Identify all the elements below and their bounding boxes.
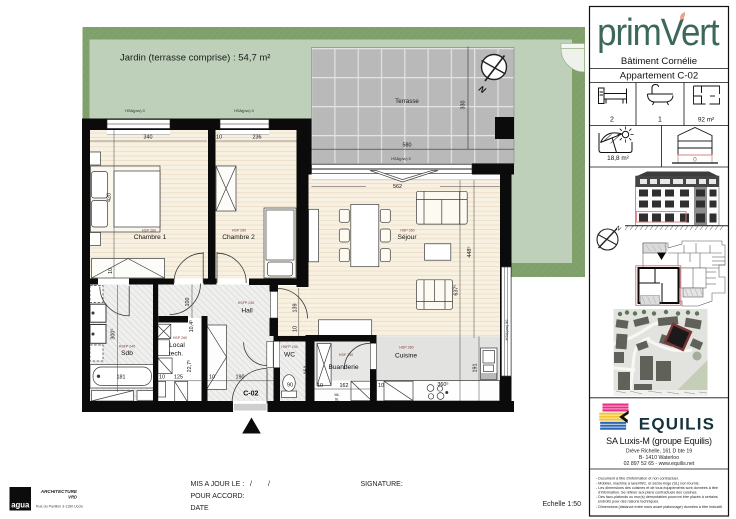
svg-text:Terrasse: Terrasse <box>395 98 419 105</box>
svg-text:HSP 260: HSP 260 <box>173 336 187 340</box>
svg-text:100: 100 <box>185 298 191 307</box>
svg-text:agua: agua <box>11 501 30 510</box>
svg-text:- Dimensions (distance entre m: - Dimensions (distance entre murs avant … <box>596 505 723 509</box>
svg-text:SIGNATURE:: SIGNATURE: <box>361 481 403 488</box>
svg-text:10: 10 <box>159 375 165 381</box>
svg-text:Echelle 1:50: Echelle 1:50 <box>542 501 581 508</box>
svg-text:Séjour: Séjour <box>397 234 417 241</box>
svg-text:HSA(pvc) 0: HSA(pvc) 0 <box>125 109 144 113</box>
svg-text:162: 162 <box>340 383 349 389</box>
svg-text:Jardin (terrasse comprise) : 5: Jardin (terrasse comprise) : 54,7 m² <box>120 53 270 64</box>
svg-text:Chambre 1: Chambre 1 <box>134 234 167 241</box>
svg-text:ARCHITECTURE: ARCHITECTURE <box>40 489 78 494</box>
svg-text:637⁵: 637⁵ <box>454 284 460 295</box>
svg-text:2: 2 <box>610 117 614 124</box>
svg-text:562: 562 <box>393 184 402 190</box>
svg-text:330: 330 <box>461 101 467 110</box>
svg-text:Sdb: Sdb <box>121 350 133 357</box>
svg-text:- Document à titre d'informati: - Document à titre d'information et non … <box>596 477 679 481</box>
svg-text:Hall: Hall <box>241 308 253 315</box>
svg-text:10: 10 <box>317 383 323 389</box>
svg-text:MIS A JOUR LE :: MIS A JOUR LE : <box>191 481 245 488</box>
svg-text:236: 236 <box>253 135 262 141</box>
svg-text:360⁵: 360⁵ <box>437 382 448 388</box>
svg-text:125: 125 <box>174 375 183 381</box>
svg-text:EQUILIS: EQUILIS <box>639 415 715 434</box>
svg-text:SL: SL <box>335 398 339 402</box>
svg-text:22,7⁵: 22,7⁵ <box>187 360 193 373</box>
svg-text:Cuisine: Cuisine <box>395 353 417 360</box>
svg-text:300⁵: 300⁵ <box>111 328 117 339</box>
svg-text:161: 161 <box>304 366 310 375</box>
svg-text:WC: WC <box>284 352 295 359</box>
svg-text:02 897 52 65 - www.equilis.net: 02 897 52 65 - www.equilis.net <box>624 461 695 467</box>
svg-text:DATE: DATE <box>191 505 209 512</box>
svg-text:HSP 260: HSP 260 <box>142 229 156 233</box>
svg-text:10: 10 <box>216 135 222 141</box>
svg-text:ML: ML <box>335 393 340 397</box>
svg-text:18,8 m²: 18,8 m² <box>607 155 629 162</box>
svg-text:340: 340 <box>144 135 153 141</box>
svg-text:endroits pour des raisons tech: endroits pour des raisons techniques. <box>598 500 659 504</box>
svg-text:Chambre 2: Chambre 2 <box>222 234 255 241</box>
svg-text:HSA(vm) 90: HSA(vm) 90 <box>505 320 509 341</box>
svg-text:139: 139 <box>292 304 298 313</box>
svg-text:HSA(pvc) 0: HSA(pvc) 0 <box>391 157 410 161</box>
svg-text:1: 1 <box>658 117 662 124</box>
svg-text:d'information. Se référer aux: d'information. Se référer aux plans cont… <box>598 490 698 494</box>
svg-text:HSP 260: HSP 260 <box>232 229 246 233</box>
svg-text:Drève Richelle, 161 D bte 19: Drève Richelle, 161 D bte 19 <box>626 449 692 455</box>
svg-text:92 m²: 92 m² <box>698 117 714 124</box>
svg-text:VRD: VRD <box>68 495 77 500</box>
svg-text:HSP 260: HSP 260 <box>399 346 413 350</box>
svg-text:10: 10 <box>378 383 384 389</box>
svg-text:10: 10 <box>108 268 114 274</box>
svg-text:C-02: C-02 <box>243 391 258 398</box>
svg-text:580: 580 <box>403 143 412 149</box>
svg-text:- Mobilier, machine à laver/WC: - Mobilier, machine à laver/WC, et sèche… <box>596 481 700 485</box>
svg-text:Bâtiment Cornélie: Bâtiment Cornélie <box>621 56 697 67</box>
svg-text:HSA(pvc) 0: HSA(pvc) 0 <box>234 109 253 113</box>
svg-text:SA Luxis-M (groupe Equilis): SA Luxis-M (groupe Equilis) <box>606 436 712 446</box>
svg-text:HSFP 240: HSFP 240 <box>119 345 136 349</box>
svg-text:tech.: tech. <box>169 351 183 358</box>
svg-text:10: 10 <box>209 375 215 381</box>
svg-text:POUR ACCORD:: POUR ACCORD: <box>191 493 245 500</box>
svg-text:Buanderie: Buanderie <box>328 364 358 371</box>
svg-text:Rue du Pavillon 3-1180 Uccle: Rue du Pavillon 3-1180 Uccle <box>36 505 83 509</box>
svg-text:/: / <box>250 481 252 488</box>
svg-text:/: / <box>268 481 270 488</box>
svg-text:HSFP 240: HSFP 240 <box>238 301 255 305</box>
svg-text:448⁵: 448⁵ <box>467 246 473 257</box>
svg-text:90: 90 <box>287 383 293 389</box>
svg-text:HSFP 240: HSFP 240 <box>281 345 298 349</box>
svg-text:HSP 260: HSP 260 <box>400 229 414 233</box>
svg-text:B- 1410 Waterloo: B- 1410 Waterloo <box>639 455 679 461</box>
svg-text:190: 190 <box>236 375 245 381</box>
svg-text:Local: Local <box>169 342 185 349</box>
svg-text:0: 0 <box>693 157 697 164</box>
svg-text:Appartement C-02: Appartement C-02 <box>620 71 698 82</box>
svg-text:HSF 240: HSF 240 <box>339 353 353 357</box>
svg-text:10: 10 <box>292 326 298 332</box>
svg-text:10,4⁵: 10,4⁵ <box>189 320 195 333</box>
svg-text:181: 181 <box>117 375 126 381</box>
svg-text:191: 191 <box>473 364 479 373</box>
svg-text:420: 420 <box>107 193 113 202</box>
svg-text:primVert: primVert <box>597 11 719 54</box>
